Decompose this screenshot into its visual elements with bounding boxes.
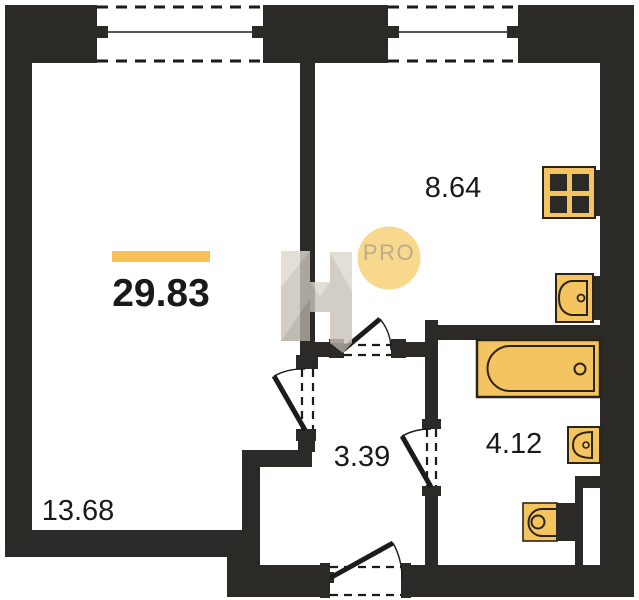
pro-badge: PRO	[358, 227, 421, 290]
window-post	[252, 26, 263, 38]
door-jamb	[401, 563, 411, 598]
door-bathroom	[402, 419, 441, 496]
bathtub-icon	[477, 340, 600, 397]
door-swing-arc	[393, 543, 402, 578]
door-jamb	[422, 486, 441, 496]
window-living-room	[97, 7, 263, 61]
sink-wall-strip	[593, 276, 600, 320]
door-opening-dashed	[302, 369, 313, 429]
window-post	[388, 26, 399, 38]
toilet-icon	[523, 503, 575, 541]
door-jamb	[391, 339, 406, 358]
floor-plan: PRO 29.83 13.68 8.64 4.12 3.39	[0, 0, 639, 600]
area-labels: 29.83 13.68 8.64 4.12 3.39	[42, 172, 543, 527]
h-logo-watermark	[281, 251, 352, 353]
hallway-area-label: 3.39	[334, 441, 390, 473]
door-jamb	[422, 419, 441, 429]
floor-plan-canvas: PRO 29.83 13.68 8.64 4.12 3.39	[0, 0, 639, 600]
door-jamb	[296, 429, 316, 441]
total-area-label: 29.83	[112, 272, 210, 315]
stove-burner	[550, 196, 567, 213]
stove-burner	[550, 174, 567, 191]
toilet-tank	[556, 503, 575, 541]
door-entrance	[320, 543, 411, 598]
window-kitchen	[388, 7, 518, 61]
bathroom-sink-icon	[568, 427, 600, 463]
door-leaf	[274, 376, 305, 430]
door-jamb	[296, 355, 318, 369]
stove-burner	[572, 196, 589, 213]
door-living-room	[274, 355, 318, 441]
bathroom-area-label: 4.12	[486, 428, 542, 460]
door-leaf	[330, 543, 393, 578]
total-area-underline	[112, 251, 210, 262]
pro-badge-text: PRO	[363, 240, 415, 265]
stove-burner	[572, 174, 589, 191]
window-post	[507, 26, 518, 38]
window-post	[97, 26, 108, 38]
kitchen-area-label: 8.64	[425, 172, 481, 204]
door-swing-arc	[274, 369, 305, 376]
living-room-area-label: 13.68	[42, 495, 115, 527]
kitchen-sink-icon	[556, 274, 600, 322]
bathtub-body	[477, 340, 600, 397]
stove-icon	[543, 167, 600, 218]
